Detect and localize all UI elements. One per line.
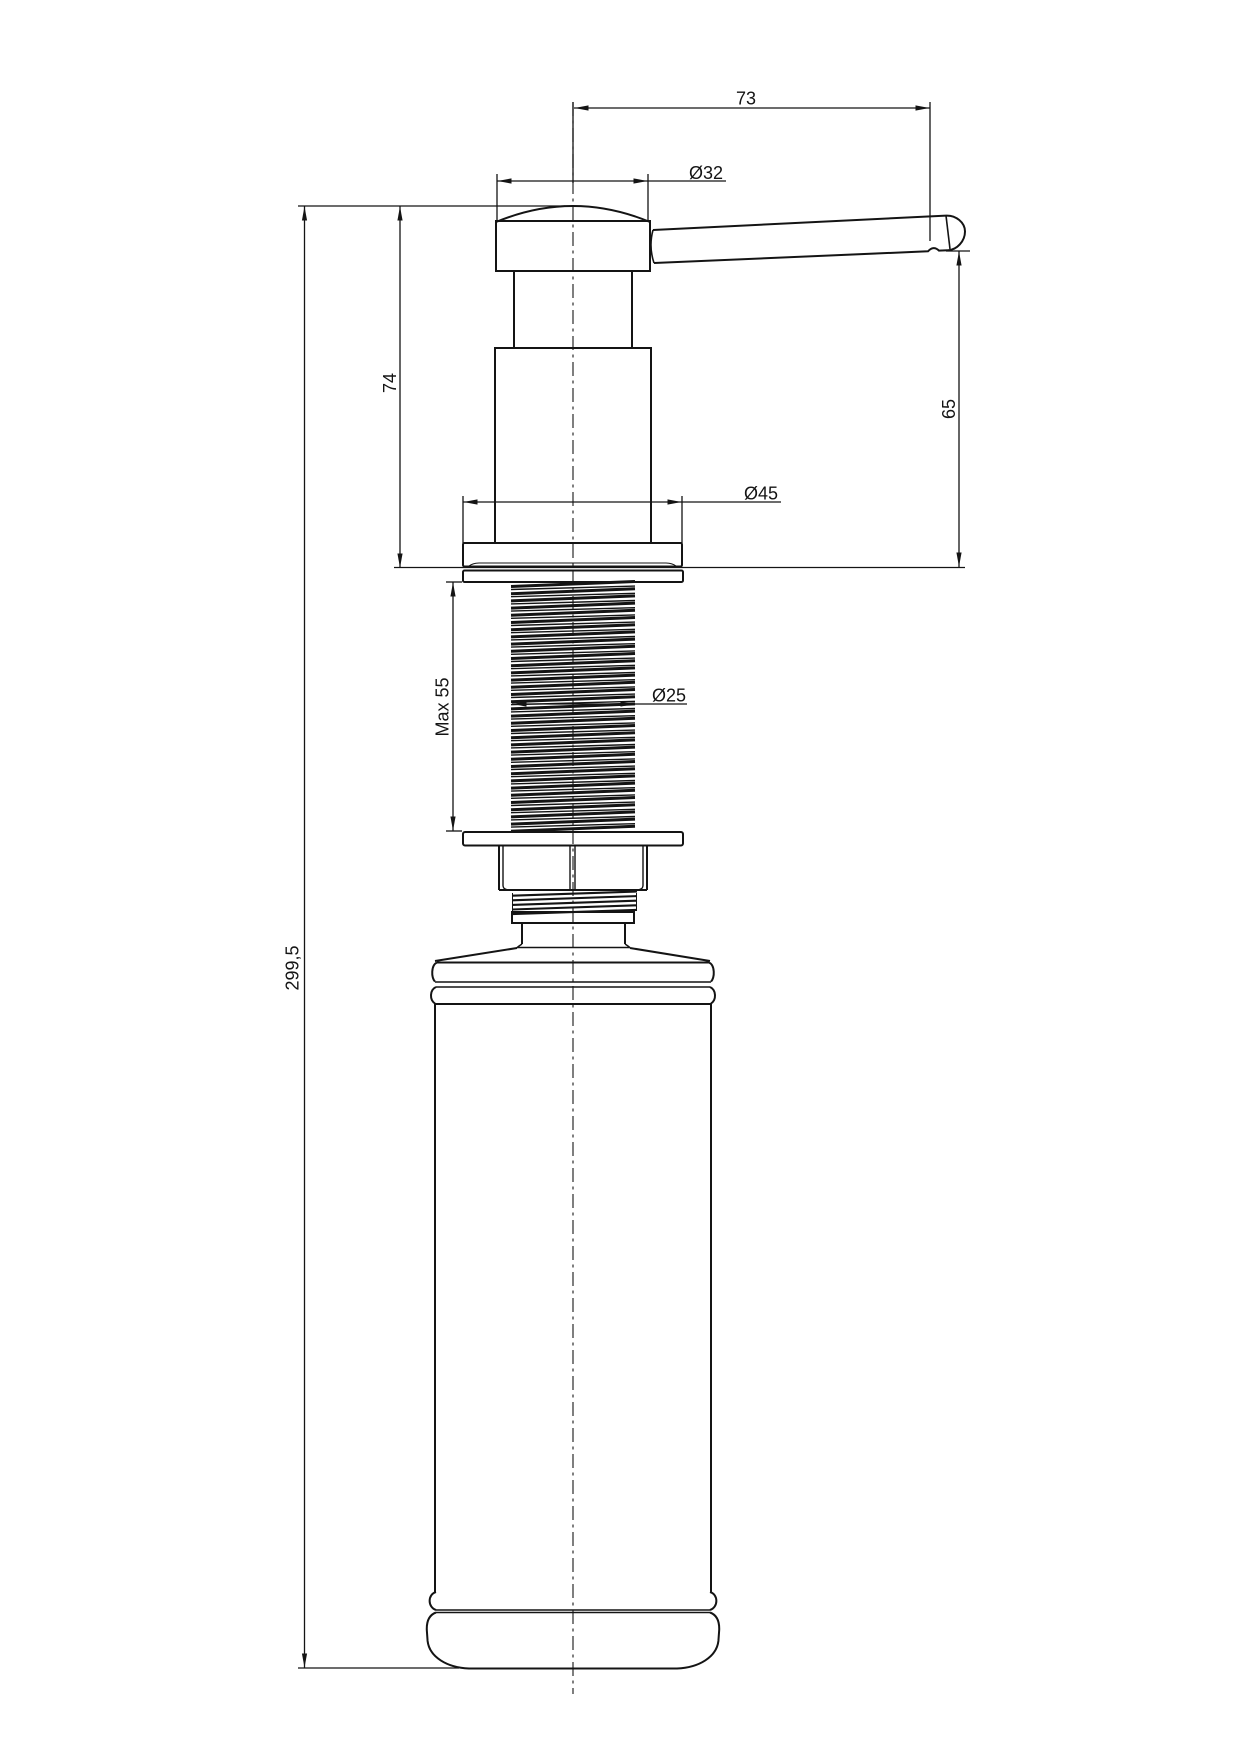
svg-text:73: 73 — [736, 89, 756, 109]
svg-text:65: 65 — [939, 399, 959, 419]
svg-text:Ø32: Ø32 — [689, 163, 723, 183]
svg-text:74: 74 — [380, 373, 400, 393]
svg-text:Max 55: Max 55 — [433, 677, 453, 736]
svg-text:299,5: 299,5 — [283, 945, 303, 990]
svg-text:Ø25: Ø25 — [652, 686, 686, 706]
svg-text:Ø45: Ø45 — [744, 484, 778, 504]
